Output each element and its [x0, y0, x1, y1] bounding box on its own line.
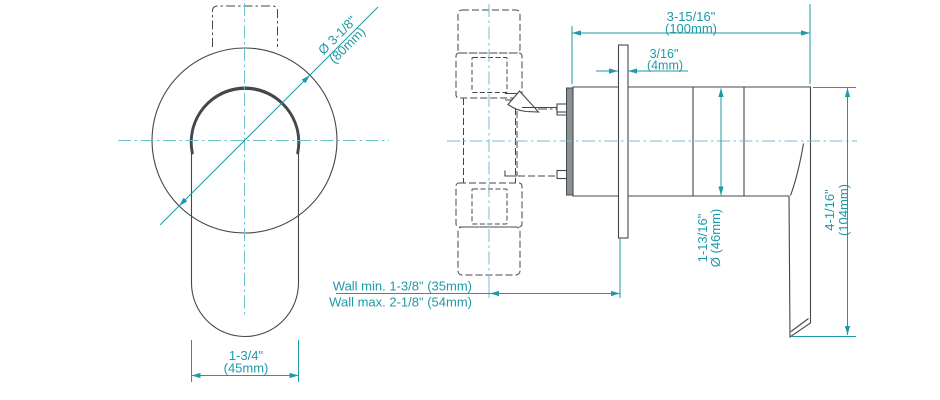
dim-plate-thickness: 3/16" (4mm): [596, 47, 688, 74]
side-view: [456, 10, 811, 337]
dim-wall-range: Wall min. 1-3/8" (35mm) Wall max. 2-1/8"…: [329, 238, 620, 310]
dim-label-45-mm: (45mm): [224, 361, 269, 376]
trim-body-and-lever: [573, 87, 811, 337]
dim-label-wall-max: Wall max. 2-1/8" (54mm): [329, 295, 472, 310]
dim-escutcheon-diameter: Ø 3-1/8" (80mm): [160, 7, 378, 225]
dim-label-104-in: 4-1/16": [822, 189, 837, 231]
drawing-canvas: Ø 3-1/8" (80mm) 1-3/4" (45mm) Wall min. …: [0, 0, 940, 400]
outlet-wedge: [508, 91, 539, 112]
dim-label-4-mm: (4mm): [647, 59, 683, 73]
dim-label-wall-min: Wall min. 1-3/8" (35mm): [333, 279, 472, 294]
dim-handle-width: 1-3/4" (45mm): [192, 340, 299, 382]
dim-label-104-mm: (104mm): [836, 184, 851, 236]
dim-label-100-mm: (100mm): [665, 21, 717, 36]
screw-boss-bottom: [557, 171, 567, 179]
dim-label-46-mm: Ø (46mm): [708, 209, 723, 268]
dim-trim-length: 3-15/16" (100mm): [572, 4, 810, 84]
technical-drawing-svg: Ø 3-1/8" (80mm) 1-3/4" (45mm) Wall min. …: [0, 0, 940, 400]
screw-boss-top: [557, 104, 567, 112]
